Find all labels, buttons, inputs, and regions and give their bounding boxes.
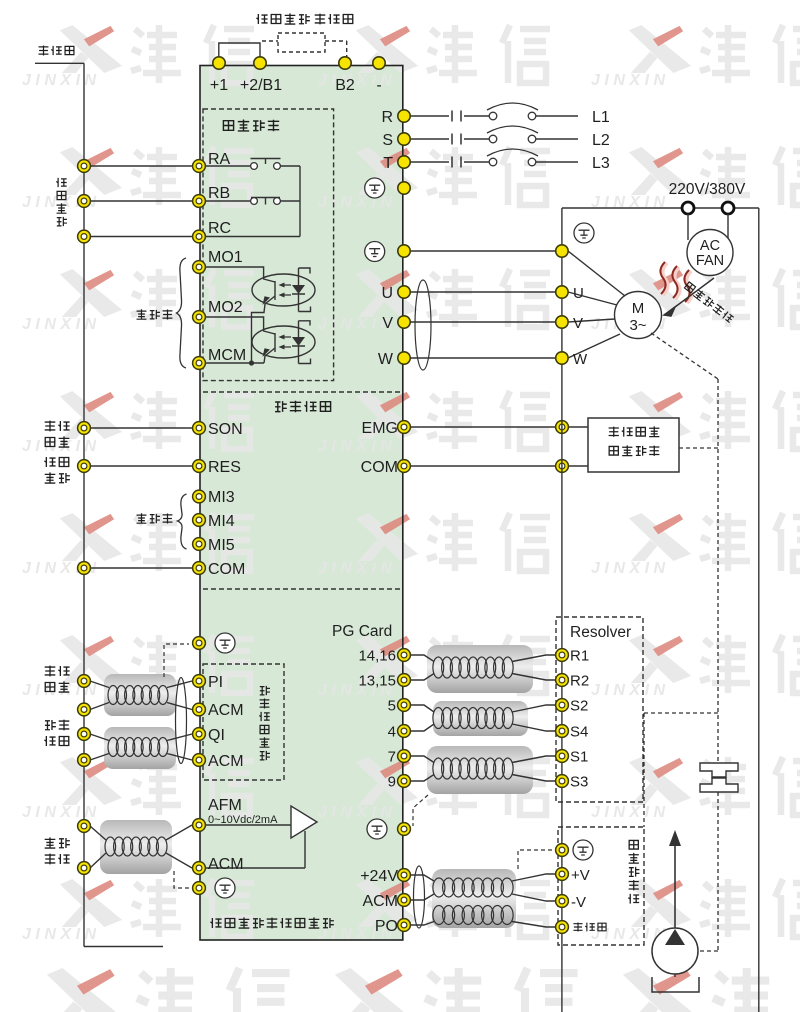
svg-text:Resolver: Resolver (570, 624, 631, 641)
svg-text:MCM: MCM (208, 347, 246, 364)
svg-text:S1: S1 (570, 749, 588, 766)
svg-text:JINXIN: JINXIN (318, 438, 397, 455)
svg-text:U: U (381, 285, 393, 302)
svg-text:S2: S2 (570, 698, 588, 715)
svg-text:JINXIN: JINXIN (22, 72, 101, 89)
svg-text:FAN: FAN (696, 253, 724, 269)
svg-text:MI3: MI3 (208, 489, 235, 506)
svg-text:+1: +1 (210, 77, 228, 94)
svg-text:U: U (573, 285, 584, 302)
svg-text:MI4: MI4 (208, 513, 235, 530)
svg-text:W: W (378, 351, 394, 368)
svg-text:PI: PI (208, 674, 223, 691)
svg-text:EMG: EMG (362, 420, 398, 437)
svg-text:AFM: AFM (208, 797, 242, 814)
svg-text:4: 4 (388, 724, 396, 741)
svg-text:3~: 3~ (629, 317, 646, 334)
svg-text:L1: L1 (592, 109, 610, 126)
svg-text:5: 5 (388, 698, 396, 715)
svg-text:R2: R2 (570, 673, 589, 690)
svg-text:M: M (632, 300, 645, 317)
svg-text:JINXIN: JINXIN (591, 682, 670, 699)
svg-text:-V: -V (571, 894, 586, 911)
svg-text:+24V: +24V (360, 868, 398, 885)
svg-text:MI5: MI5 (208, 537, 235, 554)
svg-text:JINXIN: JINXIN (22, 926, 101, 943)
svg-text:9: 9 (388, 774, 396, 791)
svg-text:ACM: ACM (208, 702, 244, 719)
svg-text:S3: S3 (570, 774, 588, 791)
svg-text:+2/B1: +2/B1 (240, 77, 282, 94)
svg-text:S: S (382, 132, 393, 149)
svg-text:JINXIN: JINXIN (591, 560, 670, 577)
svg-text:L3: L3 (592, 155, 610, 172)
svg-text:MO1: MO1 (208, 249, 243, 266)
svg-text:ACM: ACM (208, 856, 244, 873)
svg-text:14,16: 14,16 (358, 648, 396, 665)
svg-text:R: R (381, 109, 393, 126)
svg-text:V: V (573, 315, 583, 332)
svg-text:PG Card: PG Card (332, 623, 392, 640)
svg-text:0~10Vdc/2mA: 0~10Vdc/2mA (208, 814, 278, 826)
svg-text:MO2: MO2 (208, 299, 243, 316)
svg-text:13,15: 13,15 (358, 673, 396, 690)
svg-text:ACM: ACM (208, 753, 244, 770)
svg-text:QI: QI (208, 727, 225, 744)
svg-text:L2: L2 (592, 132, 610, 149)
svg-text:JINXIN: JINXIN (318, 804, 397, 821)
svg-text:RES: RES (208, 459, 241, 476)
svg-text:T: T (383, 155, 393, 172)
svg-text:R1: R1 (570, 648, 589, 665)
svg-text:JINXIN: JINXIN (318, 72, 397, 89)
svg-text:V: V (382, 315, 393, 332)
svg-text:RB: RB (208, 185, 230, 202)
svg-text:JINXIN: JINXIN (22, 316, 101, 333)
svg-text:AC: AC (700, 238, 720, 254)
svg-text:220V/380V: 220V/380V (669, 181, 746, 198)
svg-text:COM: COM (361, 459, 398, 476)
svg-text:JINXIN: JINXIN (318, 560, 397, 577)
svg-text:JINXIN: JINXIN (591, 72, 670, 89)
svg-text:S4: S4 (570, 724, 588, 741)
svg-text:RA: RA (208, 151, 231, 168)
svg-text:B2: B2 (335, 77, 355, 94)
svg-text:7: 7 (388, 749, 396, 766)
svg-text:PO: PO (375, 918, 398, 935)
svg-text:RC: RC (208, 220, 231, 237)
svg-text:W: W (573, 351, 588, 368)
svg-text:ACM: ACM (362, 893, 398, 910)
svg-text:+V: +V (571, 867, 590, 884)
svg-text:JINXIN: JINXIN (22, 804, 101, 821)
svg-text:JINXIN: JINXIN (591, 804, 670, 821)
svg-text:COM: COM (208, 561, 245, 578)
svg-text:SON: SON (208, 421, 243, 438)
svg-text:-: - (376, 77, 381, 94)
svg-text:JINXIN: JINXIN (318, 194, 397, 211)
